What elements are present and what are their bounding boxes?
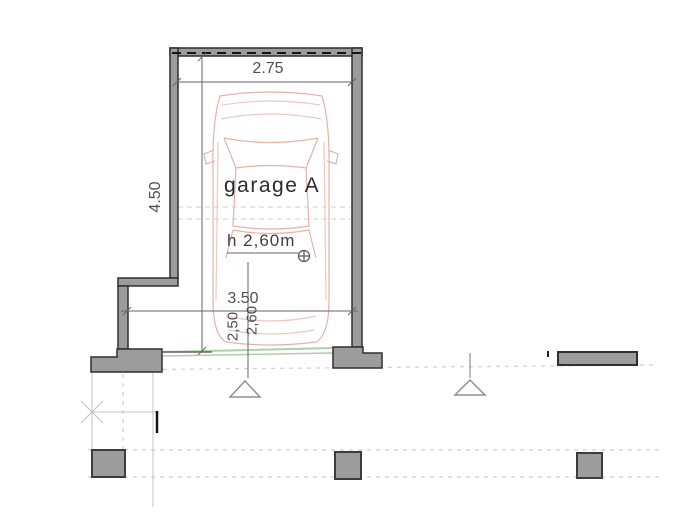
column-left: [92, 450, 125, 477]
dim-side-depth-label: 4.50: [147, 175, 165, 219]
dim-door-width-label: 2,50: [225, 305, 242, 349]
car-hood-line: [221, 114, 321, 119]
wall-left-step: [118, 278, 178, 286]
wall-bar-right: [558, 352, 637, 365]
floor-plan-canvas: garage A h 2,60m 2.75 4.50 3.50 2,60 2,5…: [0, 0, 700, 525]
walls: [91, 48, 637, 372]
height-note: h 2,60m: [227, 231, 295, 251]
room-label: garage A: [224, 174, 320, 198]
car-windshield: [224, 138, 318, 168]
columns: [92, 450, 602, 479]
column-right: [577, 453, 602, 478]
entrance-triangle-left: [230, 381, 260, 397]
grid-lines: [92, 372, 157, 507]
pier-left: [91, 349, 162, 372]
level-marker-icon: [299, 251, 310, 262]
dim-door-height-label: 2,60: [244, 299, 261, 343]
wall-right: [352, 48, 362, 347]
pier-right: [333, 347, 382, 368]
entrance-markers: [230, 380, 485, 397]
dim-top-width-label: 2.75: [238, 60, 298, 78]
column-middle: [335, 452, 361, 479]
entrance-triangle-right: [455, 380, 485, 395]
wall-left-lower: [118, 286, 128, 349]
car-front-bumper-line: [222, 101, 320, 105]
plan-drawing: [0, 0, 700, 525]
dashed-reference-lines: [88, 365, 660, 477]
